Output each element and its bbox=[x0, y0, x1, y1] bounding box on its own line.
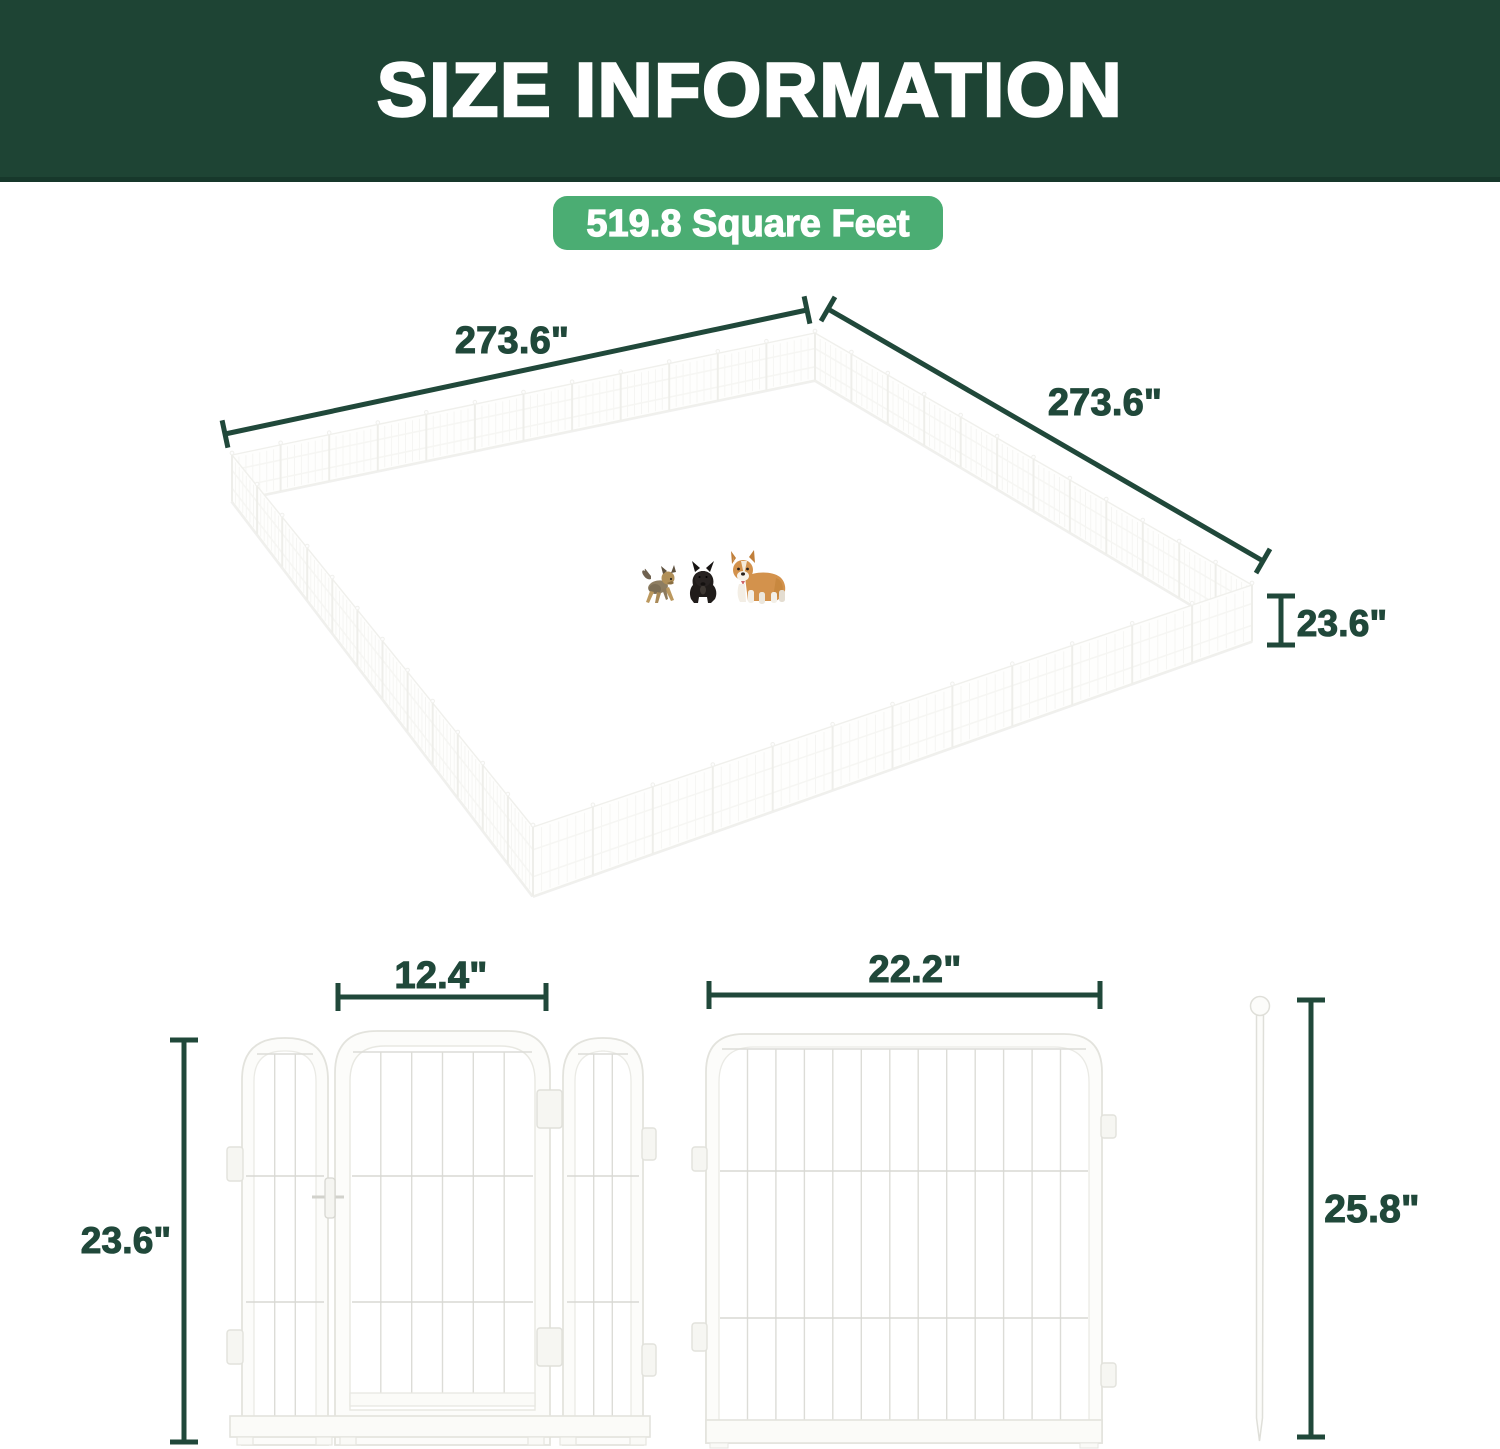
svg-text:25.8": 25.8" bbox=[1324, 1188, 1419, 1231]
svg-text:SIZE INFORMATION: SIZE INFORMATION bbox=[377, 48, 1123, 133]
svg-text:23.6": 23.6" bbox=[1297, 603, 1388, 644]
svg-text:519.8 Square Feet: 519.8 Square Feet bbox=[586, 203, 910, 245]
svg-text:12.4": 12.4" bbox=[395, 955, 488, 997]
svg-text:22.2": 22.2" bbox=[869, 949, 962, 991]
svg-text:273.6": 273.6" bbox=[455, 320, 569, 362]
svg-text:23.6": 23.6" bbox=[81, 1220, 172, 1261]
svg-text:273.6": 273.6" bbox=[1048, 382, 1162, 424]
